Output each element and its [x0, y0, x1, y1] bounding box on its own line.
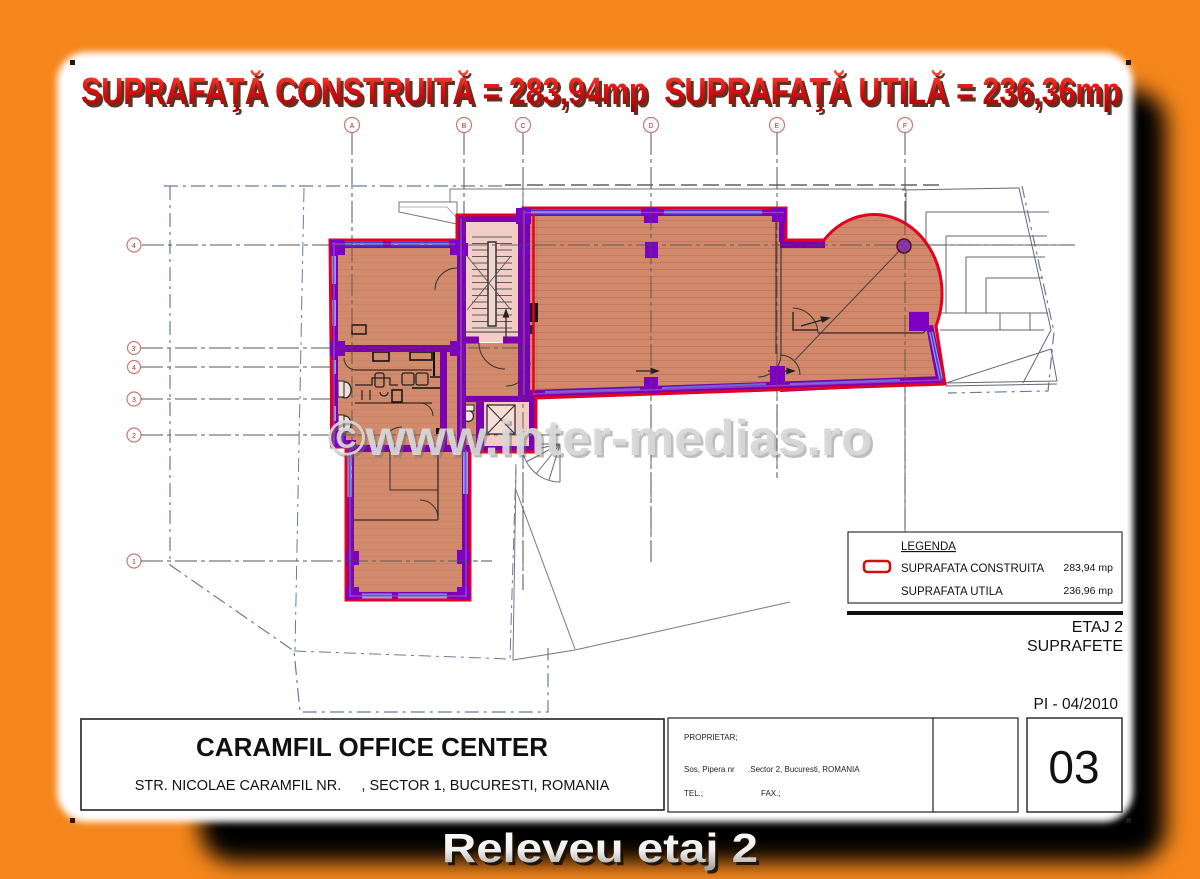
svg-text:SUPRAFATA CONSTRUITA: SUPRAFATA CONSTRUITA — [901, 563, 1044, 575]
svg-text:2: 2 — [132, 433, 136, 440]
svg-text:236,96 mp: 236,96 mp — [1063, 585, 1113, 597]
svg-text:LEGENDA: LEGENDA — [901, 541, 956, 553]
svg-text:D: D — [648, 123, 653, 130]
svg-text:Sos, Pipera nr .Sector 2,: Sos, Pipera nr .Sector 2, Bucuresti, ROM… — [684, 765, 860, 774]
svg-text:03: 03 — [1048, 741, 1099, 793]
svg-text:PI - 04/2010: PI - 04/2010 — [1034, 696, 1119, 713]
svg-text:1: 1 — [132, 559, 136, 566]
svg-text:E: E — [775, 123, 780, 130]
svg-text:F: F — [903, 123, 907, 130]
svg-text:3: 3 — [132, 397, 136, 404]
svg-text:Releveu etaj 2: Releveu etaj 2 — [442, 825, 758, 871]
svg-text:TEL.;: TEL.; — [684, 789, 703, 798]
svg-text:C: C — [520, 123, 525, 130]
svg-text:B: B — [462, 123, 467, 130]
svg-text:PROPRIETAR;: PROPRIETAR; — [684, 733, 738, 742]
svg-text:3': 3' — [131, 346, 136, 353]
svg-text:SUPRAFAŢĂ CONSTRUITĂ = 283,94m: SUPRAFAŢĂ CONSTRUITĂ = 283,94mp SUPRAFAŢ… — [81, 69, 1121, 113]
svg-text:ETAJ 2: ETAJ 2 — [1072, 619, 1123, 636]
svg-text:4: 4 — [132, 365, 136, 372]
svg-text:A: A — [350, 123, 355, 130]
svg-text:4: 4 — [132, 243, 136, 250]
svg-text:©www.inter-medias.ro: ©www.inter-medias.ro — [328, 410, 873, 466]
svg-text:283,94 mp: 283,94 mp — [1063, 562, 1113, 574]
svg-text:CARAMFIL OFFICE CENTER: CARAMFIL OFFICE CENTER — [196, 732, 548, 762]
svg-text:STR. NICOLAE CARAMFIL NR.: STR. NICOLAE CARAMFIL NR. , SECTOR 1, BU… — [135, 778, 610, 794]
svg-text:SUPRAFATA UTILA: SUPRAFATA UTILA — [901, 586, 1003, 598]
svg-text:SUPRAFETE: SUPRAFETE — [1027, 638, 1123, 655]
svg-text:FAX.;: FAX.; — [761, 789, 781, 798]
